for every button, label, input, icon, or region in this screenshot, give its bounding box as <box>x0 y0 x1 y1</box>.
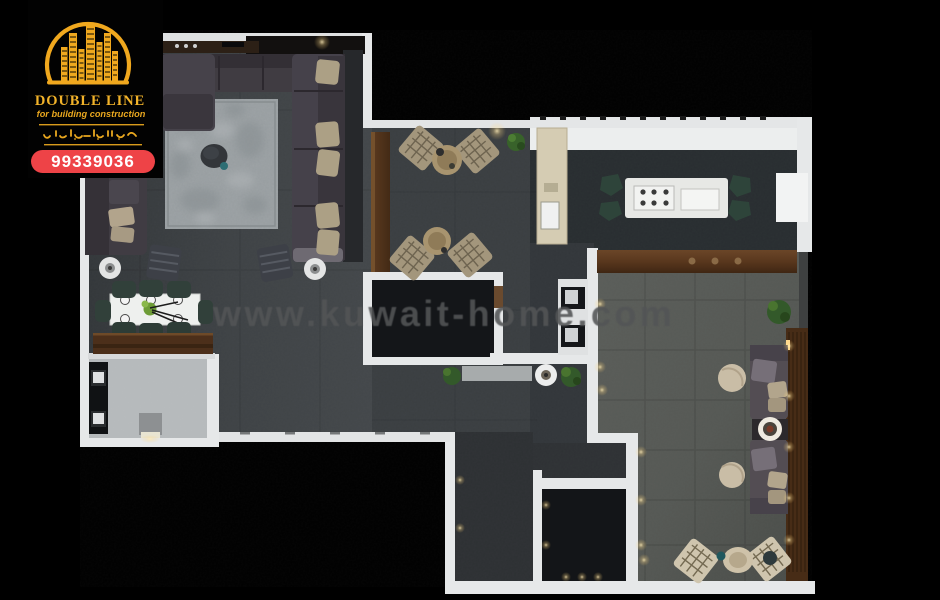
svg-text:DOUBLE LINE: DOUBLE LINE <box>35 93 145 109</box>
svg-text:www.kuwait-home.com: www.kuwait-home.com <box>212 293 675 334</box>
svg-text:for building construction: for building construction <box>37 109 146 119</box>
svg-text:99339036: 99339036 <box>51 152 135 171</box>
